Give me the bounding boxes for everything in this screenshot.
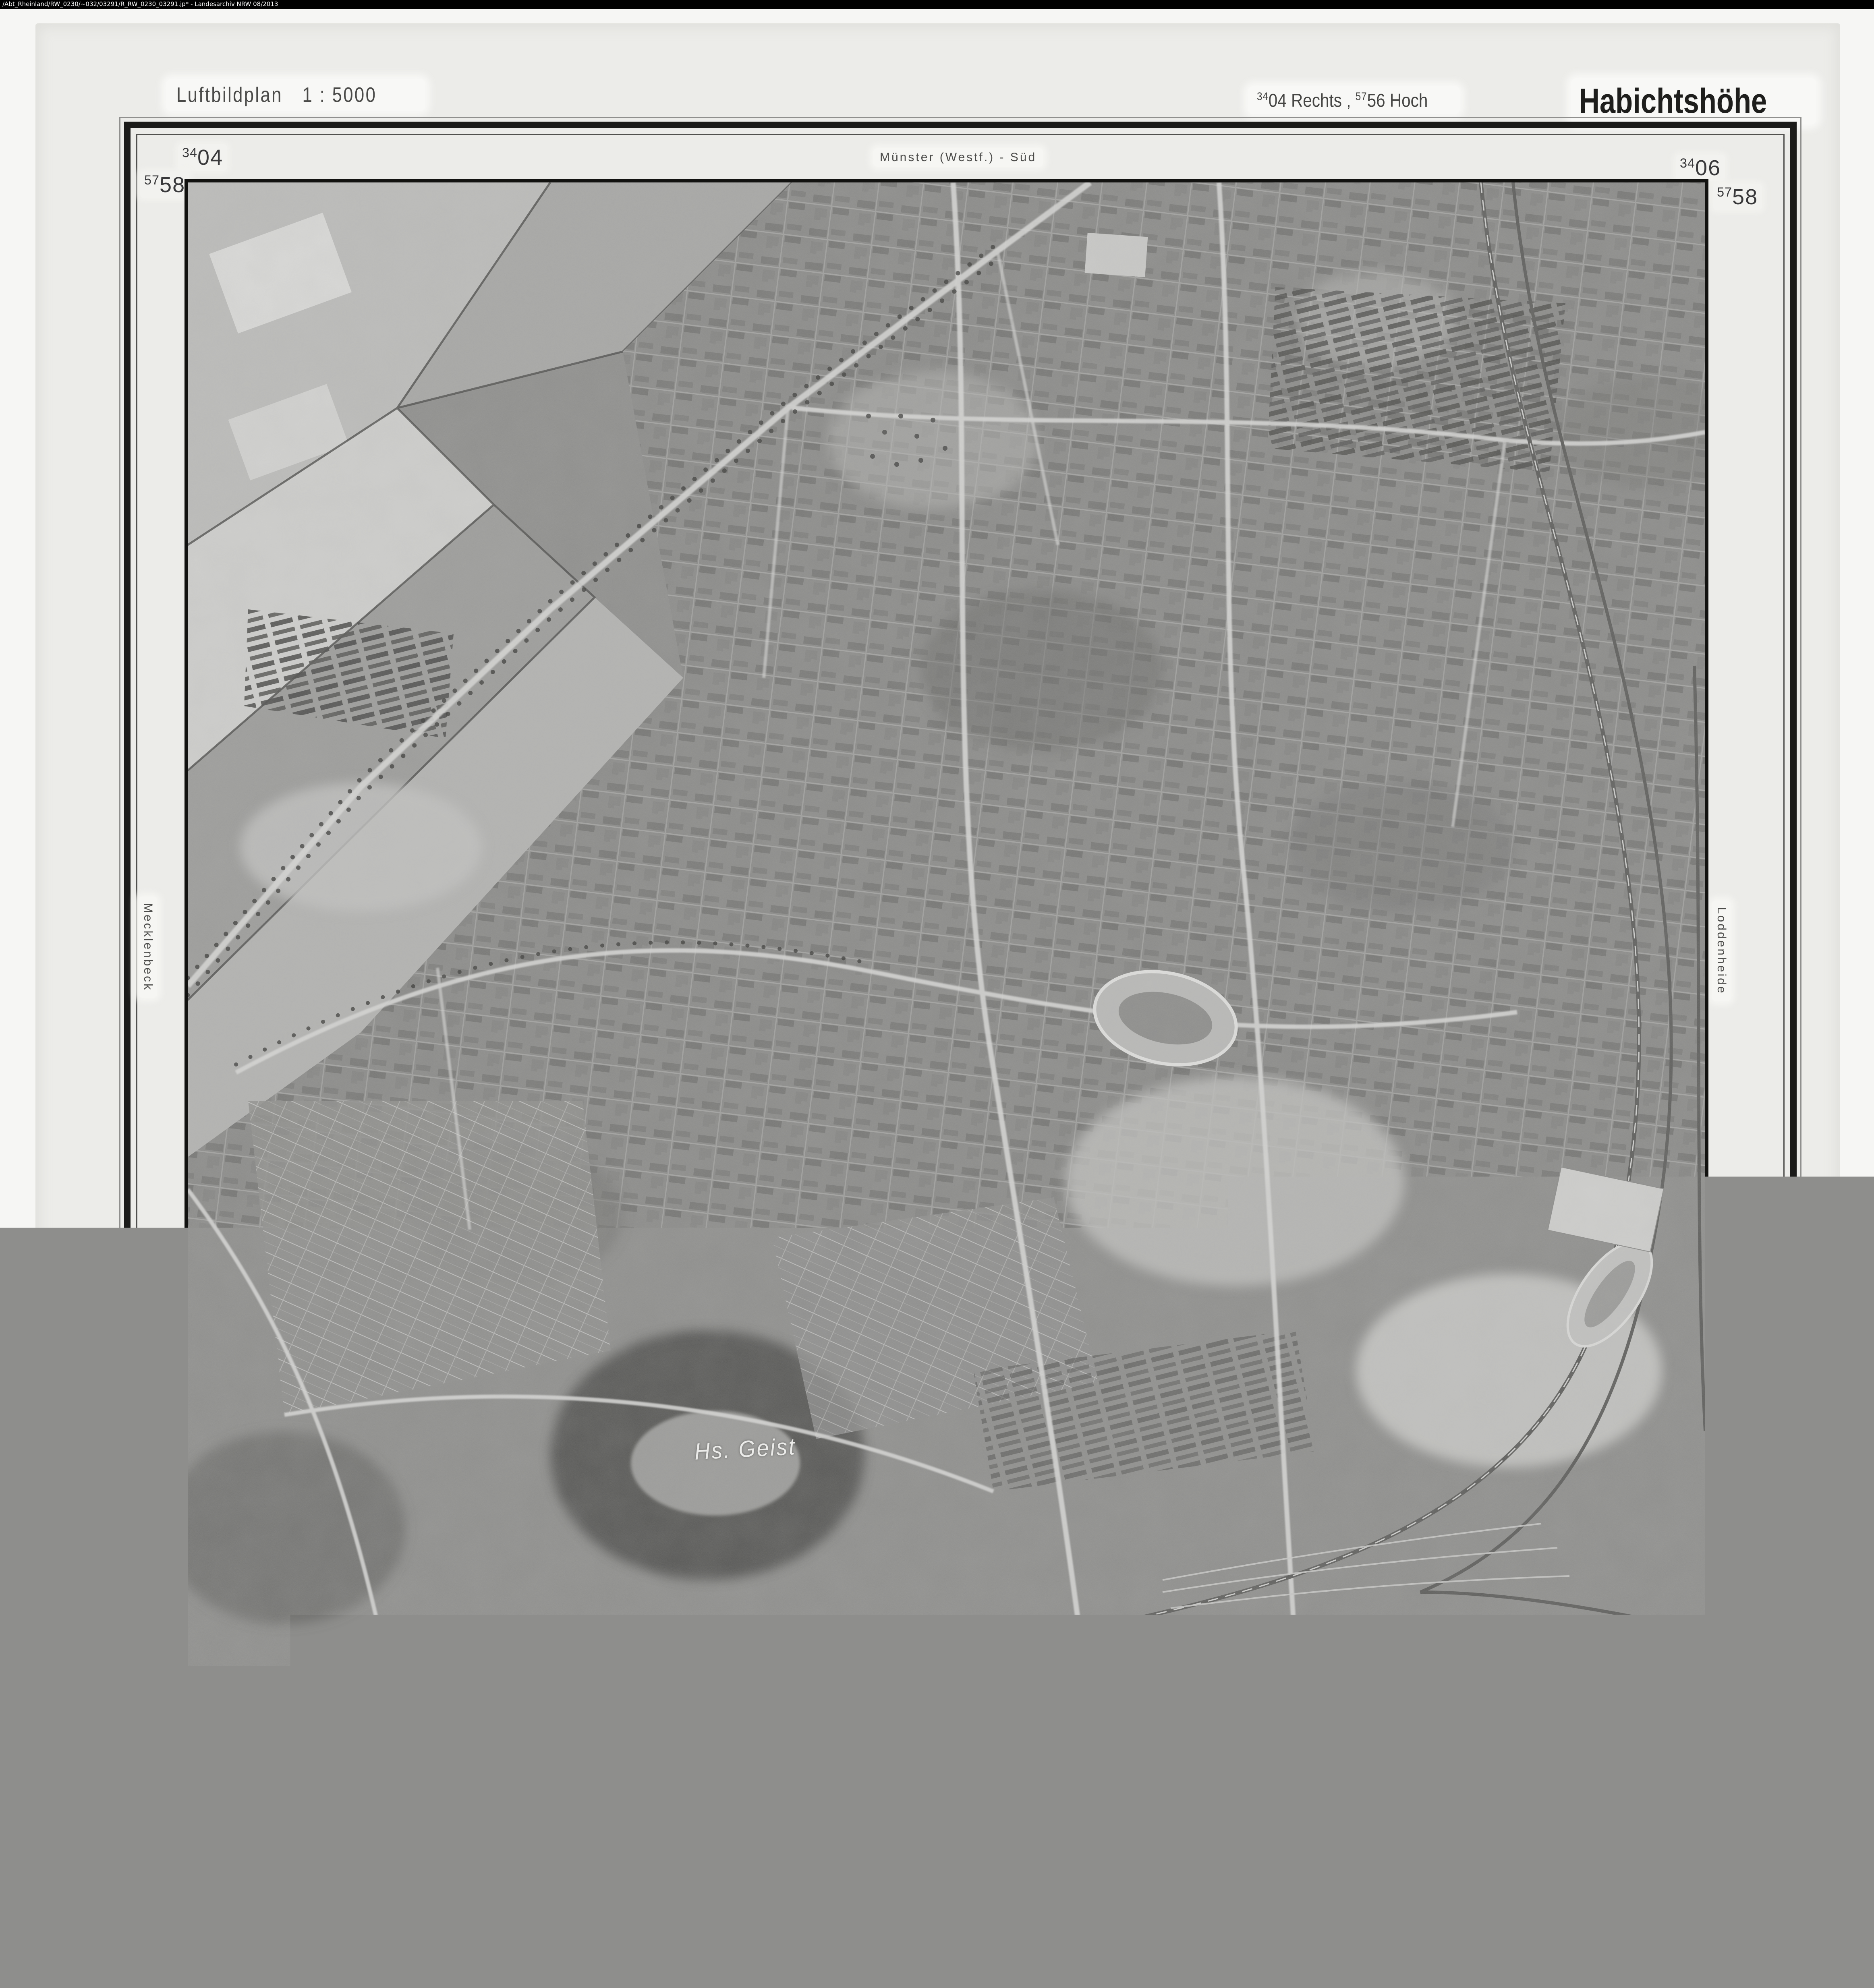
survey-date-text: Aufgen. : 9. Mai 1954 — [165, 1795, 328, 1815]
topo-map-reference: Top. Karte 1 : 25 000 Nr. 4011 — [383, 1910, 582, 1928]
place-label-text: Hs. Geist — [694, 1433, 797, 1465]
corner-coord-bottom-left-y: 5756 — [134, 1681, 183, 1708]
corner-coord-bottom-left-x: 3404 — [167, 1721, 216, 1748]
adjoining-sheet-label-bottom: Vennheide — [898, 1722, 983, 1741]
scale-tick-label: 500 m — [1240, 1829, 1296, 1845]
copyright-line2: Anfertigung von Vergrößerungen oder Verk… — [748, 1932, 1068, 1946]
corner-coord-top-left-y: 5758 — [140, 172, 189, 198]
label-text: Loddenheide — [1715, 907, 1728, 995]
coord-sup: 57 — [1717, 185, 1732, 199]
aerial-photo-graphic — [188, 182, 1705, 1715]
rectification-note: Entzerrungsgrundlage : Katasterplankarte — [1525, 1809, 1673, 1882]
scale-tick-label: 200 — [956, 1829, 1012, 1845]
corner-coord-top-left-x: 3404 — [178, 144, 227, 171]
corner-coord-bottom-right-x: 3406 — [1670, 1725, 1719, 1751]
adjoining-sheet-label-right: Loddenheide — [1712, 901, 1731, 1001]
coord-sup: 34 — [1674, 1726, 1690, 1740]
corner-coord-bottom-right-y: 5756 — [1711, 1695, 1760, 1721]
scale-tick-label: 100 — [680, 1829, 736, 1845]
coord-num: 58 — [160, 173, 185, 197]
coord-num: 06 — [1695, 156, 1721, 180]
coord-sup: 34 — [182, 145, 197, 160]
corner-coord-top-right-x: 3406 — [1676, 155, 1725, 181]
coord-num: 06 — [1690, 1726, 1715, 1750]
scale-tick-label: 400 — [1139, 1829, 1196, 1845]
scale-bar: 100 0 100 200 300 400 500 m — [708, 1812, 1259, 1852]
scanned-map-sheet: /Abt_Rheinland/RW_0230/~032/03291/R_RW_0… — [0, 0, 1874, 1988]
coord-num: 04 — [197, 145, 223, 170]
copyright-note: Nachdruck und Vervielfältigung ( auch ei… — [748, 1919, 1068, 1946]
scale-tick-label: 300 — [1047, 1829, 1104, 1845]
scale-tick-label: 0 — [772, 1829, 828, 1845]
rechts-number: 04 — [1269, 90, 1287, 111]
scale-tick-label: 100 — [864, 1829, 920, 1845]
hoch-number: 56 — [1367, 90, 1385, 111]
survey-date-label: Aufgen. : 9. Mai 1954 — [156, 1791, 368, 1820]
hoch-superscript: 57 — [1356, 90, 1367, 103]
label-text: Münster (Westf.) - Süd — [880, 151, 1037, 164]
sheet-name-text: Habichtshöhe — [1579, 82, 1767, 120]
coord-sup: 57 — [144, 173, 160, 187]
coord-num: 56 — [1731, 1696, 1756, 1720]
label-text: Mecklenbeck — [141, 903, 155, 991]
coord-sup: 57 — [1715, 1696, 1731, 1711]
adjoining-sheet-label-left: Mecklenbeck — [139, 897, 157, 998]
plan-type-text: Luftbildplan — [176, 83, 283, 107]
publisher-text: Plan und Karte G.m.b.H. Münster (Westf.) — [737, 1868, 1090, 1892]
scale-title-text: 1 : 5000 — [918, 1789, 983, 1808]
plan-type-label: Luftbildplan1 : 5000 — [166, 79, 425, 111]
archive-file-path: /Abt_Rheinland/RW_0230/~032/03291/R_RW_0… — [2, 0, 278, 8]
rechts-superscript: 34 — [1257, 90, 1269, 103]
corner-coord-top-right-y: 5758 — [1713, 184, 1762, 210]
plan-scale-text: 1 : 5000 — [302, 83, 377, 107]
grid-coordinates-label: 3404 Rechts , 5756 Hoch — [1248, 86, 1460, 114]
coord-sup: 34 — [171, 1723, 186, 1737]
label-text: Vennheide — [905, 1725, 976, 1738]
rectification-line2: Katasterplankarte — [1529, 1856, 1669, 1877]
scale-title: 1 : 5000 — [866, 1789, 1035, 1809]
rechts-word: Rechts , — [1291, 90, 1351, 111]
coord-sup: 57 — [138, 1682, 153, 1697]
topo-map-reference-text: Top. Karte 1 : 25 000 Nr. 4011 — [389, 1912, 575, 1925]
viewer-title-bar: /Abt_Rheinland/RW_0230/~032/03291/R_RW_0… — [0, 0, 1874, 9]
adjoining-sheet-label-top: Münster (Westf.) - Süd — [873, 148, 1043, 167]
aerial-photo: Hs. Geist — [184, 179, 1708, 1718]
coord-num: 58 — [1732, 185, 1758, 209]
place-label-hs-geist: Hs. Geist — [694, 1433, 797, 1465]
hoch-word: Hoch — [1390, 90, 1428, 111]
rectification-line1: Entzerrungsgrundlage : — [1529, 1814, 1669, 1856]
coord-num: 04 — [186, 1723, 212, 1747]
copyright-line1: Nachdruck und Vervielfältigung ( auch ei… — [748, 1919, 1068, 1932]
publisher-label: Plan und Karte G.m.b.H. Münster (Westf.) — [729, 1865, 1166, 1895]
coord-num: 56 — [153, 1682, 179, 1706]
coord-sup: 34 — [1680, 156, 1695, 170]
